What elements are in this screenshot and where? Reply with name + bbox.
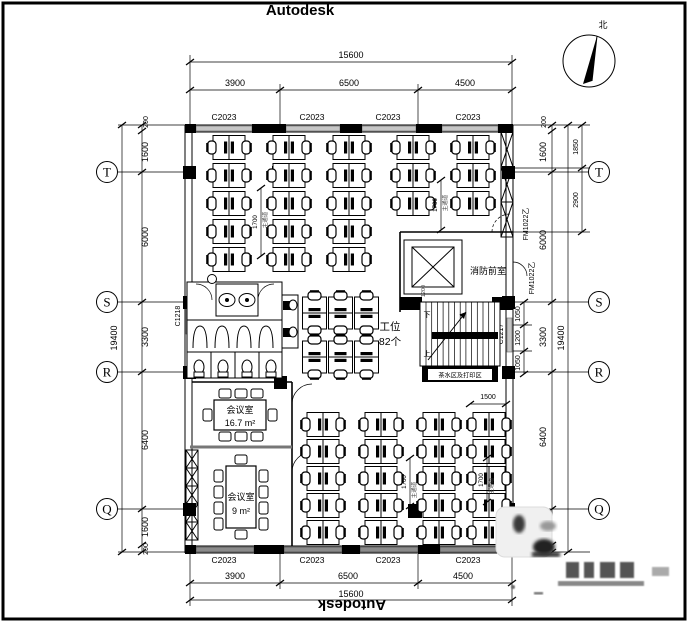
curtain-wall-right <box>501 132 513 237</box>
workstation-zone-label: 工位 <box>380 320 401 333</box>
aisle-label: 主通道 <box>410 481 418 498</box>
door-tag-fm1022: FM1022乙 <box>522 208 530 241</box>
meeting-large-area: 16.7 m² <box>225 418 256 428</box>
workstation-pair <box>266 192 312 216</box>
dim-bottom-overall: 15600 <box>338 589 363 599</box>
dim-top-seg2: 6500 <box>339 78 359 88</box>
workstation-pair <box>358 467 404 491</box>
workstation-pair <box>358 413 404 437</box>
dim-left-seg: 1600 <box>140 517 150 537</box>
workstation-pair <box>326 164 372 188</box>
workstation-pair <box>466 440 512 464</box>
workstation-pair <box>416 521 462 545</box>
dim-bottom-seg1: 3900 <box>225 571 245 581</box>
window-tag: C2023 <box>455 555 480 565</box>
aisle-dim: 1700 <box>478 473 485 487</box>
window-tag: C2023 <box>211 112 236 122</box>
dim-right-seg: 6000 <box>538 230 548 250</box>
aisle-label: 主通道 <box>487 477 495 494</box>
fire-lobby-label: 消防前室 <box>470 265 506 276</box>
dim-bottom-seg2: 6500 <box>338 571 358 581</box>
dim-right-overall: 19400 <box>556 325 566 350</box>
elevator <box>404 240 462 294</box>
workstation-pair <box>450 136 496 160</box>
window-tag: C2023 <box>455 112 480 122</box>
dim-top-seg1: 3900 <box>225 78 245 88</box>
workstation-pair <box>266 136 312 160</box>
workstation-pair <box>206 220 252 244</box>
dim-right-stair: 1200 <box>515 330 522 346</box>
north-arrow-icon: 北 <box>563 20 615 87</box>
dim-left-seg: 200 <box>143 116 150 128</box>
dim-right-seg: 3300 <box>538 327 548 347</box>
workstation-pair <box>355 290 379 336</box>
workstation-pair <box>326 192 372 216</box>
dimension-left: 19400 200 1600 6000 3300 6400 1600 200 <box>109 116 185 555</box>
workstation-pair <box>300 494 346 518</box>
workstation-pair <box>303 290 327 336</box>
meeting-large-name: 会议室 <box>226 404 253 415</box>
workstation-pair <box>206 164 252 188</box>
workstation-pair <box>358 521 404 545</box>
workstation-pair <box>206 248 252 272</box>
stair-block: 下 上 1200 <box>400 285 513 366</box>
grid-bubble-r-left: R <box>103 365 112 380</box>
watermark-blur <box>496 507 669 595</box>
workstation-pair <box>300 440 346 464</box>
workstation-pair <box>390 164 436 188</box>
workstation-pair <box>326 248 372 272</box>
dim-left-seg: 200 <box>143 543 150 555</box>
workstation-pair <box>326 220 372 244</box>
grid-bubble-t-left: T <box>103 165 111 180</box>
drawing-sheet: Autodesk Autodesk 北 15600 3900 6500 4500… <box>0 0 688 623</box>
grid-bubble-s-right: S <box>595 295 602 310</box>
grid-bubble-s-left: S <box>103 295 110 310</box>
middle-desk-zone <box>303 290 379 380</box>
workstation-pair <box>300 521 346 545</box>
workstation-pair <box>450 164 496 188</box>
window-tag: C2023 <box>299 112 324 122</box>
dim-top-seg3: 4500 <box>455 78 475 88</box>
stair-up-label: 上 <box>424 349 431 358</box>
aisle-label: 主通道 <box>441 194 449 211</box>
window-tag: C2023 <box>375 112 400 122</box>
pantry-strip: 茶水区及打印区 <box>422 366 498 382</box>
window-tag: C2023 <box>375 555 400 565</box>
workstation-pair <box>266 220 312 244</box>
workstation-pair <box>329 334 353 380</box>
grid-bubble-q-left: Q <box>102 502 112 517</box>
toilet-block <box>187 275 298 379</box>
workstation-pair <box>329 290 353 336</box>
dim-left-overall: 19400 <box>109 325 119 350</box>
workstation-pair <box>358 494 404 518</box>
stair-flight-dim: 1200 <box>421 285 427 297</box>
workstation-pair <box>300 467 346 491</box>
dimension-right: 200 1600 6000 3300 6400 1600 200 19400 1… <box>513 116 590 555</box>
workstation-pair <box>206 192 252 216</box>
workstation-pair <box>358 440 404 464</box>
workstation-pair <box>390 136 436 160</box>
window-tag: C2023 <box>299 555 324 565</box>
workstation-pair <box>266 248 312 272</box>
north-label: 北 <box>598 20 607 30</box>
workstation-pair <box>326 136 372 160</box>
workstation-pair <box>416 494 462 518</box>
workstation-pair <box>355 334 379 380</box>
dim-left-seg: 3300 <box>140 327 150 347</box>
grid-bubble-t-right: T <box>595 165 603 180</box>
workstation-pair <box>416 413 462 437</box>
aisle-dim: 1700 <box>252 215 259 229</box>
meeting-small-area: 9 m² <box>232 506 250 516</box>
dim-right-inner: 2900 <box>573 192 580 208</box>
floor-plan-canvas: Autodesk Autodesk 北 15600 3900 6500 4500… <box>0 0 688 623</box>
grid-bubble-q-right: Q <box>594 502 604 517</box>
grid-bubble-r-right: R <box>595 365 604 380</box>
window-tag: C2023 <box>211 555 236 565</box>
window-tag-c1218: C1218 <box>175 306 182 327</box>
aisle-dim: 1700 <box>401 475 408 489</box>
dim-right-seg: 1600 <box>538 142 548 162</box>
door-tag-fm1022: FM1022乙 <box>528 262 536 295</box>
brand-top: Autodesk <box>266 2 335 19</box>
dim-left-seg: 6400 <box>140 430 150 450</box>
dim-left-seg: 1600 <box>140 142 150 162</box>
dim-right-stair: 1050 <box>515 355 522 371</box>
meeting-rooms: 会议室 16.7 m² 会议室 9 m² <box>190 382 312 546</box>
workstation-pair <box>390 192 436 216</box>
dim-right-seg: 200 <box>541 116 548 128</box>
dim-top-overall: 15600 <box>338 50 363 60</box>
meeting-small-name: 会议室 <box>227 491 254 502</box>
workstation-pair <box>450 192 496 216</box>
workstation-pair <box>416 440 462 464</box>
workstation-pair <box>300 413 346 437</box>
stair-down-label: 下 <box>424 311 431 319</box>
dim-bottom-seg3: 4500 <box>453 571 473 581</box>
dim-right-inner: 1850 <box>573 139 580 155</box>
workstation-count: 82个 <box>379 336 402 348</box>
workstation-pair <box>266 164 312 188</box>
workstation-pair <box>466 413 512 437</box>
dim-left-seg: 6000 <box>140 227 150 247</box>
workstation-pair <box>303 334 327 380</box>
meeting-room-large: 会议室 16.7 m² <box>203 389 277 441</box>
dim-right-stair: 1050 <box>515 306 522 322</box>
workstation-pair <box>206 136 252 160</box>
aisle-label: 主通道 <box>261 211 269 228</box>
dim-right-seg: 6400 <box>538 427 548 447</box>
desk-depth-dim: 1500 <box>480 394 496 401</box>
workstation-pair <box>416 467 462 491</box>
meeting-room-small: 会议室 9 m² <box>214 455 268 539</box>
pantry-label: 茶水区及打印区 <box>438 372 481 380</box>
aisle-dim: 1700 <box>432 198 439 212</box>
